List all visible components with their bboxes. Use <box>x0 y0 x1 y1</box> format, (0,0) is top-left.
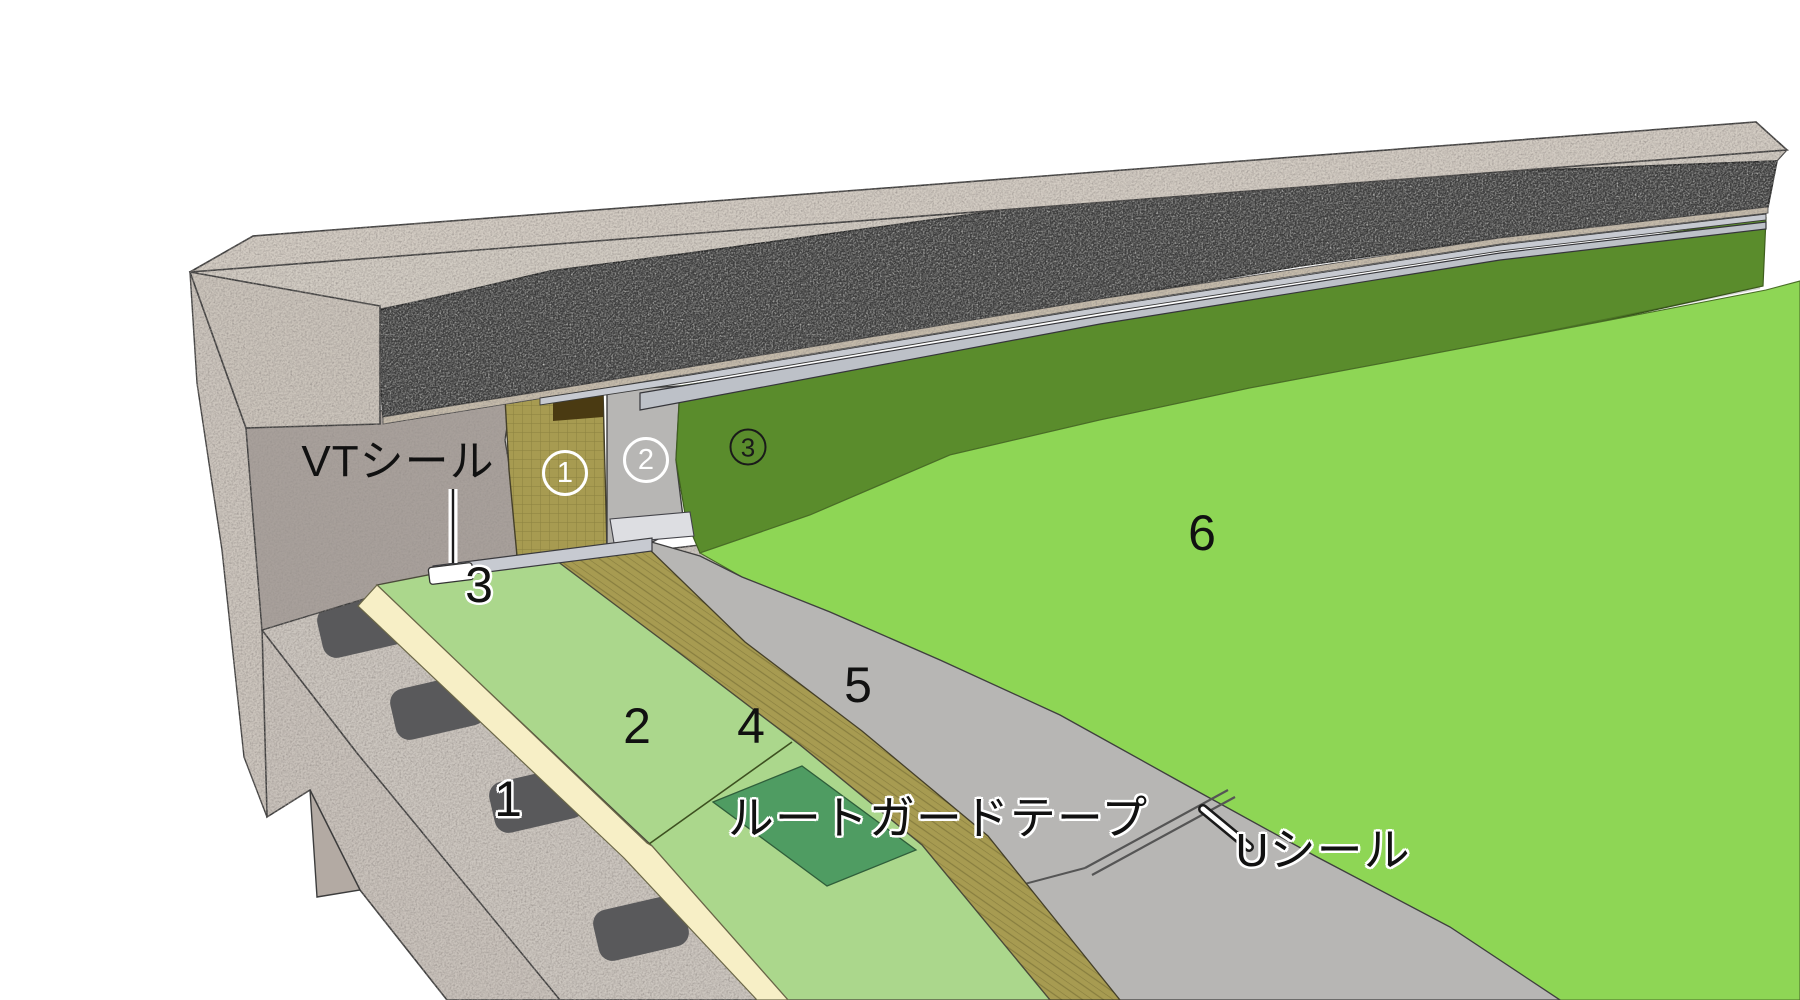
wall-layer-3-badge: 3 <box>730 429 767 466</box>
wall-layer-2-number: 2 <box>638 446 654 475</box>
floor-layer-4-number: 4 <box>737 701 765 751</box>
wall-layer-1-badge: 1 <box>542 450 588 496</box>
u-seal-label: Uシール <box>1235 827 1410 873</box>
floor-layer-2-number: 2 <box>623 701 651 751</box>
floor-layer-5-number: 5 <box>844 660 872 710</box>
wall-layer-1-number: 1 <box>557 459 573 488</box>
vt-seal-label: VTシール <box>301 440 494 484</box>
root-guard-tape-label: ルートガードテープ <box>728 795 1148 841</box>
floor-layer-1-number: 1 <box>494 774 522 824</box>
layer-3-number: 3 <box>465 560 493 610</box>
diagram-canvas: VTシール 3 1 2 3 1 2 4 5 6 ルートガードテープ Uシール <box>0 0 1800 1000</box>
wall-layer-2-badge: 2 <box>623 437 669 483</box>
diagram-drawing <box>0 0 1800 1000</box>
wall-layer-3-number: 3 <box>741 434 755 460</box>
floor-layer-6-number: 6 <box>1188 508 1216 558</box>
